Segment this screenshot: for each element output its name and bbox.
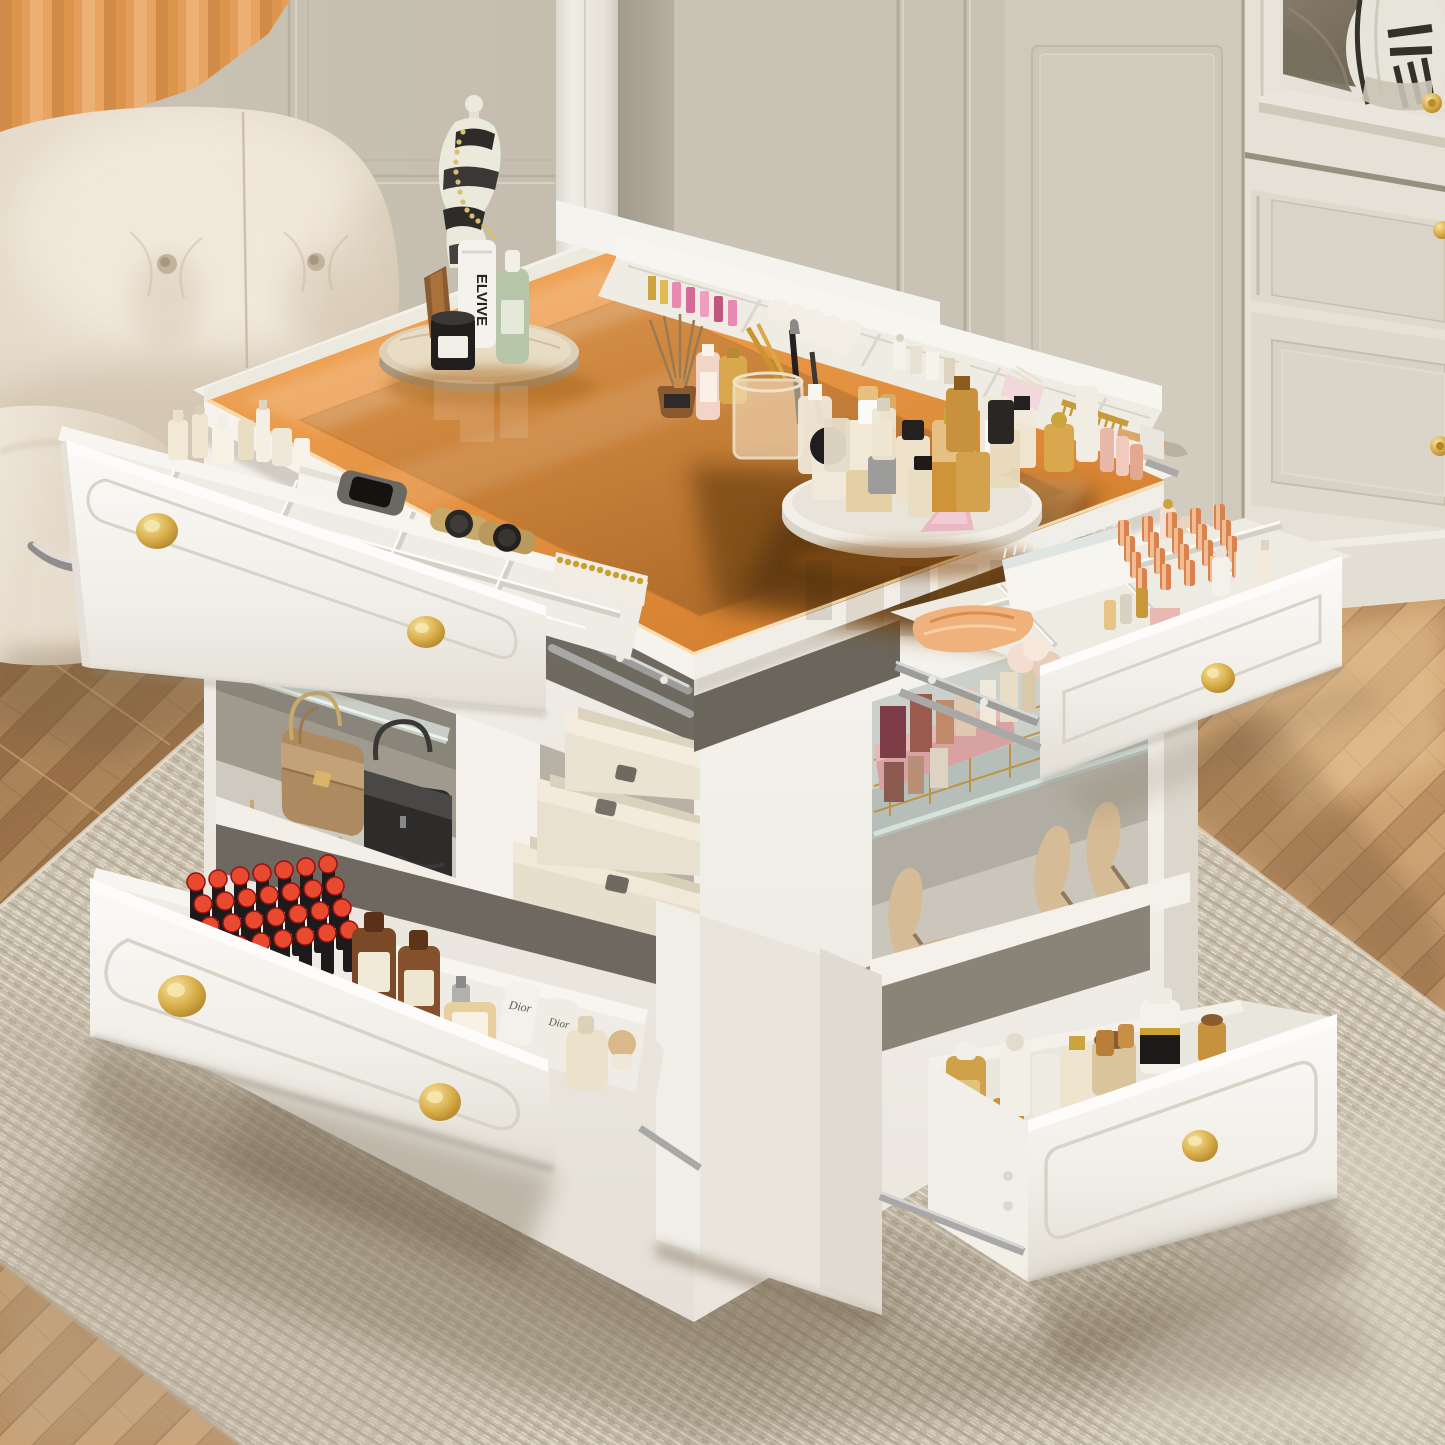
svg-text:ELVIVE: ELVIVE <box>473 274 490 326</box>
